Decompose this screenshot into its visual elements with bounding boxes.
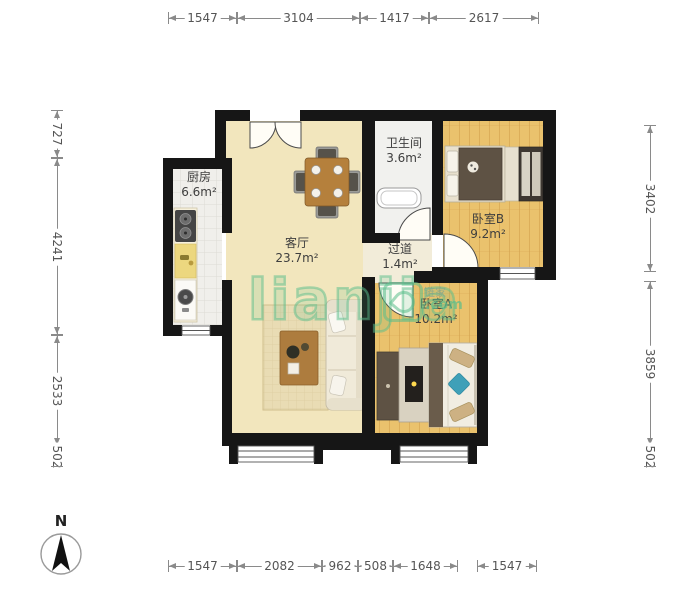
dimension-value: 3402 <box>643 180 657 217</box>
dim-top-1: 1547 <box>168 10 237 26</box>
dimension-value: 508 <box>361 559 390 573</box>
room-label-bedroomB: 卧室B 9.2m² <box>470 212 506 242</box>
lianjia-watermark-com: .com <box>425 297 463 313</box>
dim-top-4: 2617 <box>429 10 539 26</box>
kitchen-counter <box>174 208 197 322</box>
room-name: 过道 <box>388 242 412 257</box>
compass-north-label: N <box>38 512 84 530</box>
bedroomB-furniture <box>445 146 543 202</box>
dim-right-3: 502 <box>642 446 658 467</box>
dim-bottom-1: 1547 <box>168 558 237 574</box>
room-name: 卫生间 <box>386 136 422 151</box>
compass: N <box>38 512 84 580</box>
living-bay-window <box>238 446 314 462</box>
dimension-value: 727 <box>50 120 64 149</box>
dim-bottom-3: 962 <box>322 558 358 574</box>
dim-bottom-4: 508 <box>358 558 393 574</box>
nightstand <box>505 147 519 201</box>
dimension-value: 2082 <box>261 559 298 573</box>
room-label-bathroom: 卫生间 3.6m² <box>386 136 422 166</box>
dim-bottom-2: 2082 <box>237 558 322 574</box>
dim-left-2: 4241 <box>49 158 65 335</box>
bedroomA-furniture <box>377 343 478 427</box>
coffee-table <box>280 331 318 385</box>
dim-left-4: 502 <box>49 446 65 467</box>
dimension-value: 962 <box>326 559 355 573</box>
dining-table <box>305 158 349 206</box>
room-label-kitchen: 厨房 6.6m² <box>181 170 217 200</box>
dimension-value: 502 <box>50 442 64 471</box>
lianjia-logo-icon <box>383 282 423 322</box>
room-area: 6.6m² <box>181 185 217 200</box>
dimension-value: 2617 <box>466 11 503 25</box>
room-name: 厨房 <box>187 170 211 185</box>
dim-right-1: 3402 <box>642 125 658 272</box>
bathtub <box>377 188 421 208</box>
room-area: 9.2m² <box>470 227 506 242</box>
room-area: 3.6m² <box>386 151 422 166</box>
dimension-value: 1547 <box>489 559 526 573</box>
room-label-living: 客厅 23.7m² <box>275 236 318 266</box>
dim-right-2: 3859 <box>642 281 658 446</box>
dimension-value: 502 <box>643 442 657 471</box>
dimension-value: 1547 <box>184 11 221 25</box>
compass-needle-icon <box>38 530 84 576</box>
dim-left-3: 2533 <box>49 335 65 446</box>
dimension-value: 1547 <box>184 559 221 573</box>
room-area: 23.7m² <box>275 251 318 266</box>
dimension-value: 3104 <box>280 11 317 25</box>
bedroomA-bay-window <box>400 446 468 462</box>
room-name: 客厅 <box>285 236 309 251</box>
lianjia-leaf-icon <box>389 287 420 318</box>
dim-left-1: 727 <box>49 110 65 158</box>
dimension-value: 1648 <box>407 559 444 573</box>
dimension-value: 1417 <box>376 11 413 25</box>
room-name: 卧室B <box>472 212 504 227</box>
floorplan-canvas: 厨房 6.6m² 客厅 23.7m² 卫生间 3.6m² 过道 1.4m² 卧室… <box>0 0 700 605</box>
dim-top-3: 1417 <box>360 10 429 26</box>
dimension-value: 2533 <box>50 372 64 409</box>
dim-top-2: 3104 <box>237 10 360 26</box>
dimension-value: 4241 <box>50 228 64 265</box>
dimension-value: 3859 <box>643 345 657 382</box>
dim-bottom-6: 1547 <box>477 558 537 574</box>
dim-bottom-5: 1648 <box>393 558 458 574</box>
